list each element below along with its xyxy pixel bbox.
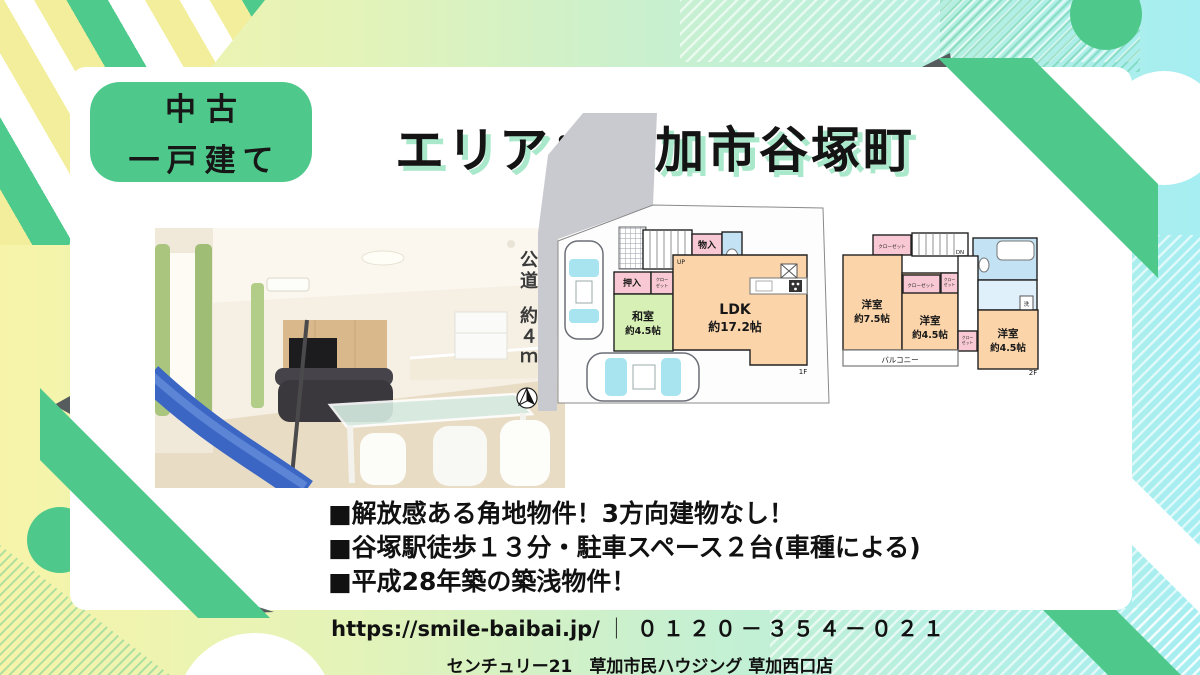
corner-ribbons [0,0,1200,675]
footer: https://smile-baibai.jp/｜０１２０－３５４－０２１ セン… [80,613,1200,675]
footer-separator: ｜ [606,617,627,641]
phone-number: ０１２０－３５４－０２１ [637,617,949,641]
green-ribbon-top-right [938,58,1158,278]
company-name: センチュリー21 草加市民ハウジング 草加西口店 [80,652,1200,675]
flyer: 中古 一戸建て エリア：草加市谷塚町 [0,0,1200,675]
footer-contact-line: https://smile-baibai.jp/｜０１２０－３５４－０２１ [80,613,1200,643]
green-ribbon-bottom-left [40,388,270,618]
website-url: https://smile-baibai.jp/ [331,617,600,641]
